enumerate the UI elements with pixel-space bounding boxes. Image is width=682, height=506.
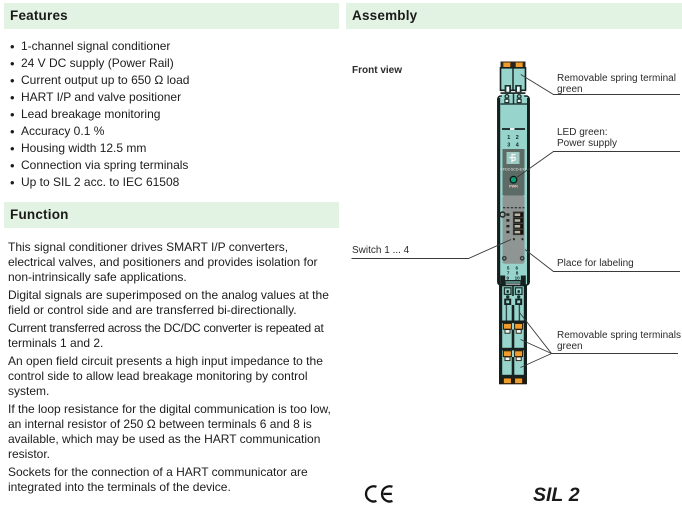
svg-text:4: 4 <box>516 142 519 148</box>
svg-text:9: 9 <box>507 276 510 281</box>
svg-text:PWR: PWR <box>509 184 518 188</box>
svg-text:2: 2 <box>516 135 519 141</box>
svg-text:1: 1 <box>507 135 510 141</box>
svg-text:3: 3 <box>507 142 510 148</box>
svg-text:10: 10 <box>515 276 521 281</box>
svg-text:KFD2-SCD-EX1: KFD2-SCD-EX1 <box>501 167 527 171</box>
